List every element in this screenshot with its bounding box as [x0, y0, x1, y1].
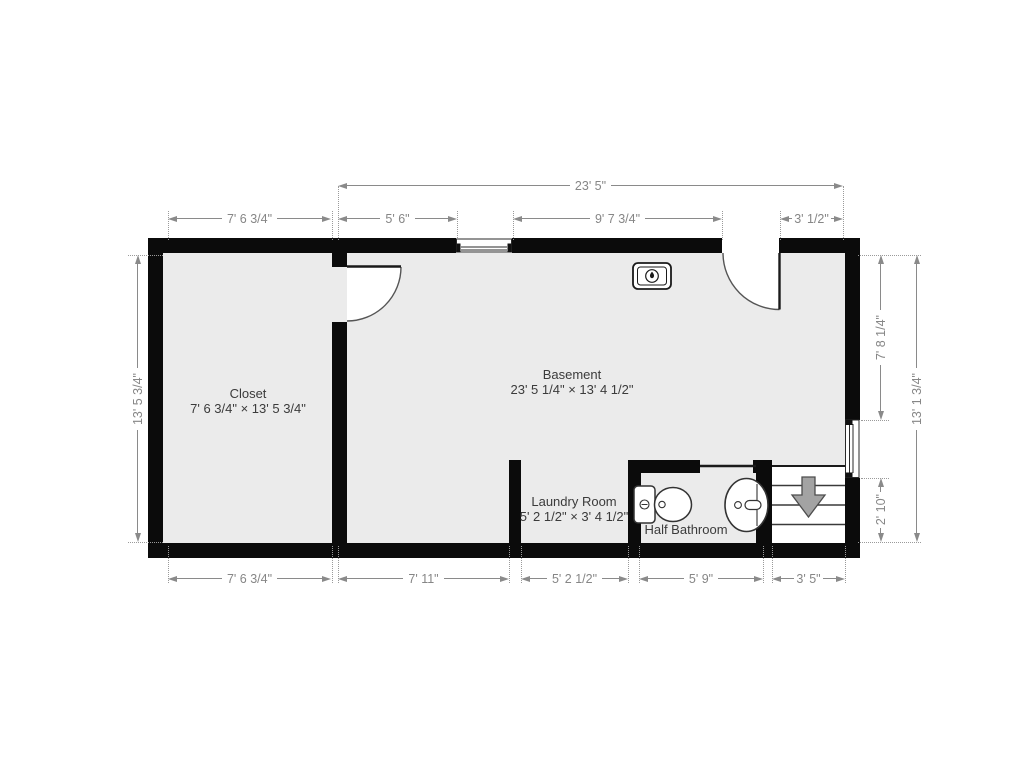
arrowhead-right-icon [834, 183, 843, 189]
arrowhead-right-icon [500, 576, 509, 582]
dim-label: 7' 11" [403, 572, 443, 586]
extension-line [843, 186, 844, 240]
dim-line [718, 578, 754, 579]
extension-line [639, 546, 640, 583]
arrowhead-left-icon [521, 576, 530, 582]
dim-label: 9' 7 3/4" [590, 212, 645, 226]
arrowhead-up-icon [878, 255, 884, 264]
wall-bottom [148, 543, 860, 558]
dim-line [347, 185, 570, 186]
dim-line [277, 578, 322, 579]
extension-line [457, 211, 458, 240]
dim-line [415, 218, 448, 219]
arrowhead-left-icon [338, 183, 347, 189]
dim-label: 23' 5" [570, 179, 611, 193]
dimension-top-window-to-door: 9' 7 3/4" [513, 211, 722, 226]
dimension-bottom-laundry: 5' 2 1/2" [521, 571, 628, 586]
dim-line [648, 578, 684, 579]
extension-line [338, 546, 339, 583]
extension-line [628, 546, 629, 583]
room-label-laundry: Laundry Room 5' 2 1/2" × 3' 4 1/2" [490, 494, 658, 524]
arrowhead-up-icon [135, 255, 141, 264]
dim-label: 3' 5" [794, 572, 822, 586]
arrowhead-left-icon [639, 576, 648, 582]
dimension-bottom-bathroom: 5' 9" [639, 571, 763, 586]
wall-right-upper [845, 238, 860, 420]
room-label-closet: Closet 7' 6 3/4" × 13' 5 3/4" [150, 386, 346, 416]
arrowhead-down-icon [878, 533, 884, 542]
arrowhead-right-icon [713, 216, 722, 222]
wall-top-left-segment [148, 238, 456, 253]
dim-label: 2' 10" [874, 492, 888, 527]
extension-line [338, 186, 339, 240]
arrowhead-left-icon [338, 576, 347, 582]
dim-line [781, 578, 794, 579]
extension-line [509, 546, 510, 583]
dimension-right-upper: 7' 8 1/4" [873, 255, 888, 420]
extension-line [861, 478, 889, 479]
arrowhead-right-icon [619, 576, 628, 582]
dimension-right-overall: 13' 1 3/4" [909, 255, 924, 542]
dim-label: 13' 5 3/4" [131, 368, 145, 430]
room-name: Closet [150, 386, 346, 401]
dim-line [177, 218, 222, 219]
room-name: Laundry Room [490, 494, 658, 509]
arrowhead-right-icon [322, 576, 331, 582]
dim-label: 3' 1/2" [792, 212, 831, 226]
dim-label: 5' 2 1/2" [547, 572, 602, 586]
room-name: Basement [440, 367, 704, 382]
top-window-icon [457, 239, 512, 253]
arrowhead-left-icon [168, 576, 177, 582]
room-size: 5' 2 1/2" × 3' 4 1/2" [490, 509, 658, 524]
dim-line [444, 578, 500, 579]
wall-stairs-left [756, 460, 772, 543]
extension-line [780, 211, 781, 240]
arrowhead-right-icon [448, 216, 457, 222]
room-label-basement: Basement 23' 5 1/4" × 13' 4 1/2" [440, 367, 704, 397]
dim-line [277, 218, 322, 219]
dimension-left-height: 13' 5 3/4" [130, 255, 145, 542]
arrowhead-down-icon [914, 533, 920, 542]
dim-label: 7' 6 3/4" [222, 212, 277, 226]
floorplan-canvas: Closet 7' 6 3/4" × 13' 5 3/4" Basement 2… [0, 0, 1024, 768]
arrowhead-right-icon [322, 216, 331, 222]
room-name: Half Bathroom [640, 522, 732, 537]
dim-line [645, 218, 713, 219]
extension-line [763, 546, 764, 583]
dim-line [611, 185, 834, 186]
dim-label: 5' 6" [380, 212, 414, 226]
arrowhead-right-icon [836, 576, 845, 582]
dimension-bottom-stairs: 3' 5" [772, 571, 845, 586]
arrowhead-down-icon [135, 533, 141, 542]
extension-line [521, 546, 522, 583]
arrowhead-left-icon [168, 216, 177, 222]
dimension-top-overall: 23' 5" [338, 178, 843, 193]
dim-line [602, 578, 619, 579]
dim-label: 7' 6 3/4" [222, 572, 277, 586]
extension-line [772, 546, 773, 583]
dim-line [137, 264, 138, 368]
dimension-bottom-closet: 7' 6 3/4" [168, 571, 331, 586]
extension-line [128, 542, 163, 543]
arrowhead-left-icon [780, 216, 789, 222]
extension-line [722, 211, 723, 240]
arrowhead-left-icon [338, 216, 347, 222]
wall-closet-door-stub [332, 253, 347, 267]
arrowhead-up-icon [878, 478, 884, 487]
extension-line [845, 546, 846, 583]
wall-right-lower [845, 478, 860, 558]
dim-line [880, 264, 881, 310]
dim-label: 7' 8 1/4" [874, 310, 888, 365]
wall-closet-divider [332, 322, 347, 543]
stairwell-floor [772, 466, 845, 543]
room-size: 23' 5 1/4" × 13' 4 1/2" [440, 382, 704, 397]
extension-line [168, 211, 169, 240]
extension-line [128, 255, 163, 256]
dim-line [823, 578, 836, 579]
extension-line [332, 546, 333, 583]
dim-line [916, 264, 917, 368]
extension-line [332, 211, 333, 240]
dimension-top-closet: 7' 6 3/4" [168, 211, 331, 226]
extension-line [513, 211, 514, 240]
extension-line [858, 542, 921, 543]
right-window-icon [846, 420, 860, 478]
dim-label: 13' 1 3/4" [910, 368, 924, 430]
dim-label: 5' 9" [684, 572, 718, 586]
arrowhead-down-icon [878, 411, 884, 420]
dim-line [916, 430, 917, 534]
wall-top-mid-segment [512, 238, 722, 253]
dim-line [137, 430, 138, 534]
extension-line [861, 420, 889, 421]
arrowhead-left-icon [772, 576, 781, 582]
extension-line [168, 546, 169, 583]
dimension-bottom-basement: 7' 11" [338, 571, 509, 586]
dimension-top-wall-to-window: 5' 6" [338, 211, 457, 226]
arrowhead-right-icon [834, 216, 843, 222]
dim-line [522, 218, 590, 219]
dimension-right-lower: 2' 10" [873, 478, 888, 542]
dim-line [530, 578, 547, 579]
dim-line [880, 365, 881, 411]
dim-line [347, 218, 380, 219]
arrowhead-left-icon [513, 216, 522, 222]
dim-line [347, 578, 403, 579]
arrowhead-up-icon [914, 255, 920, 264]
dimension-top-door-to-corner: 3' 1/2" [780, 211, 843, 226]
room-size: 7' 6 3/4" × 13' 5 3/4" [150, 401, 346, 416]
arrowhead-right-icon [754, 576, 763, 582]
room-label-half-bathroom: Half Bathroom [640, 522, 732, 537]
extension-line [858, 255, 921, 256]
dim-line [177, 578, 222, 579]
wall-bathroom-top [628, 460, 700, 473]
